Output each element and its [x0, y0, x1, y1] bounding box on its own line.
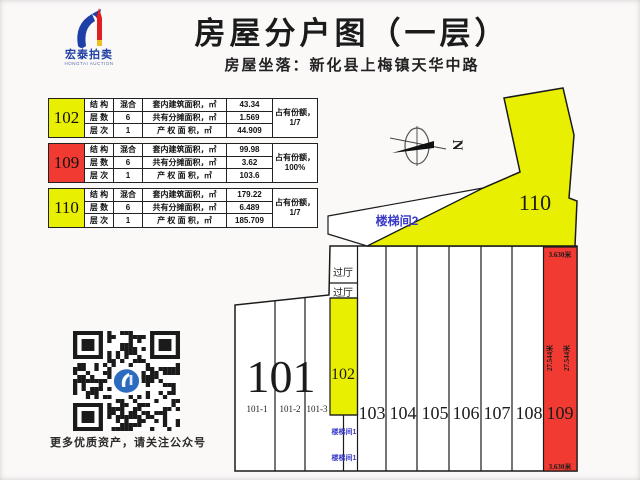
north-label: N — [449, 140, 465, 151]
row-label: 结 构 — [85, 144, 114, 157]
staircase1-label-1: 楼梯间1 — [332, 427, 357, 436]
metric-value: 44.909 — [227, 124, 273, 137]
north-arrow-icon: N — [390, 126, 465, 166]
unit-101-2-label: 101-2 — [280, 404, 301, 414]
metric-label: 套内建筑面积，㎡ — [143, 99, 227, 112]
unit-number: 109 — [49, 144, 85, 182]
unit-102-label: 102 — [331, 366, 355, 383]
unit-101-1-label: 101-1 — [247, 404, 268, 414]
metric-value: 43.34 — [227, 99, 273, 112]
row-label: 层 数 — [85, 112, 114, 125]
row-value: 6 — [114, 157, 143, 170]
metric-label: 套内建筑面积，㎡ — [143, 144, 227, 157]
dim-height-2: 27.544米 — [562, 344, 571, 371]
metric-value: 1.569 — [227, 112, 273, 125]
row-label: 层 次 — [85, 214, 114, 227]
dim-height-1: 27.544米 — [545, 344, 554, 371]
unit-103-label: 103 — [359, 403, 386, 423]
unit-110-label: 110 — [519, 190, 551, 215]
share-label: 占有份额， — [275, 198, 315, 208]
metric-value: 179.22 — [227, 189, 273, 202]
row-label: 层 次 — [85, 124, 114, 137]
metric-value: 3.62 — [227, 157, 273, 170]
dim-bottom: 3.630米 — [549, 462, 573, 471]
row-value: 混合 — [114, 189, 143, 202]
unit-table-109: 109 占有份额， 100% 结 构 混合 套内建筑面积，㎡ 99.98 层 数… — [48, 143, 318, 183]
row-value: 混合 — [114, 144, 143, 157]
row-label: 层 数 — [85, 202, 114, 215]
page-title: 房屋分户图（一层） — [64, 8, 640, 53]
metric-value: 6.489 — [227, 202, 273, 215]
unit-table-110: 110 占有份额， 1/7 结 构 混合 套内建筑面积，㎡ 179.22 层 数… — [48, 188, 318, 228]
staircase1-label-2: 楼梯间1 — [332, 453, 357, 462]
row-label: 层 数 — [85, 157, 114, 170]
unit-102-area — [330, 298, 358, 415]
row-value: 1 — [114, 124, 143, 137]
qr-caption: 更多优质资产，请关注公众号 — [38, 434, 218, 450]
share-value: 100% — [285, 163, 305, 173]
unit-108-label: 108 — [516, 403, 543, 423]
share-cell: 占有份额， 100% — [273, 144, 317, 182]
share-label: 占有份额， — [275, 153, 315, 163]
row-value: 6 — [114, 112, 143, 125]
unit-104-label: 104 — [390, 403, 417, 423]
row-label: 层 次 — [85, 169, 114, 182]
unit-109-label: 109 — [547, 403, 574, 423]
metric-label: 共有分摊面积，㎡ — [143, 157, 227, 170]
share-value: 1/7 — [289, 208, 300, 218]
staircase2-label: 楼梯间2 — [376, 213, 419, 228]
metric-label: 产 权 面 积，㎡ — [143, 169, 227, 182]
hall-label-2: 过厅 — [333, 286, 353, 299]
qr-code — [73, 331, 180, 431]
metric-value: 185.709 — [227, 214, 273, 227]
metric-label: 产 权 面 积，㎡ — [143, 214, 227, 227]
unit-number: 102 — [49, 99, 85, 137]
unit-number: 110 — [49, 189, 85, 227]
floorplan-page: N 楼梯间2 过厅 过厅 楼梯间1 楼梯间1 101 101-1 101-2 1… — [0, 0, 640, 480]
unit-table-102: 102 占有份额， 1/7 结 构 混合 套内建筑面积，㎡ 43.34 层 数 … — [48, 98, 318, 138]
unit-101-3-label: 101-3 — [307, 404, 328, 414]
unit-107-label: 107 — [484, 403, 511, 423]
hall-label-1: 过厅 — [333, 266, 353, 279]
unit-105-label: 105 — [422, 403, 449, 423]
share-cell: 占有份额， 1/7 — [273, 189, 317, 227]
row-value: 混合 — [114, 99, 143, 112]
share-label: 占有份额， — [275, 108, 315, 118]
row-label: 结 构 — [85, 99, 114, 112]
row-label: 结 构 — [85, 189, 114, 202]
metric-value: 99.98 — [227, 144, 273, 157]
metric-label: 共有分摊面积，㎡ — [143, 112, 227, 125]
metric-label: 套内建筑面积，㎡ — [143, 189, 227, 202]
dim-top: 3.630米 — [549, 250, 573, 259]
metric-value: 103.6 — [227, 169, 273, 182]
share-cell: 占有份额， 1/7 — [273, 99, 317, 137]
row-value: 6 — [114, 202, 143, 215]
row-value: 1 — [114, 214, 143, 227]
metric-label: 产 权 面 积，㎡ — [143, 124, 227, 137]
share-value: 1/7 — [289, 118, 300, 128]
page-subtitle: 房屋坐落：新化县上梅镇天华中路 — [64, 54, 640, 75]
qr-center-logo — [113, 368, 141, 394]
unit-106-label: 106 — [453, 403, 480, 423]
unit-101-label: 101 — [247, 351, 316, 402]
metric-label: 共有分摊面积，㎡ — [143, 202, 227, 215]
row-value: 1 — [114, 169, 143, 182]
